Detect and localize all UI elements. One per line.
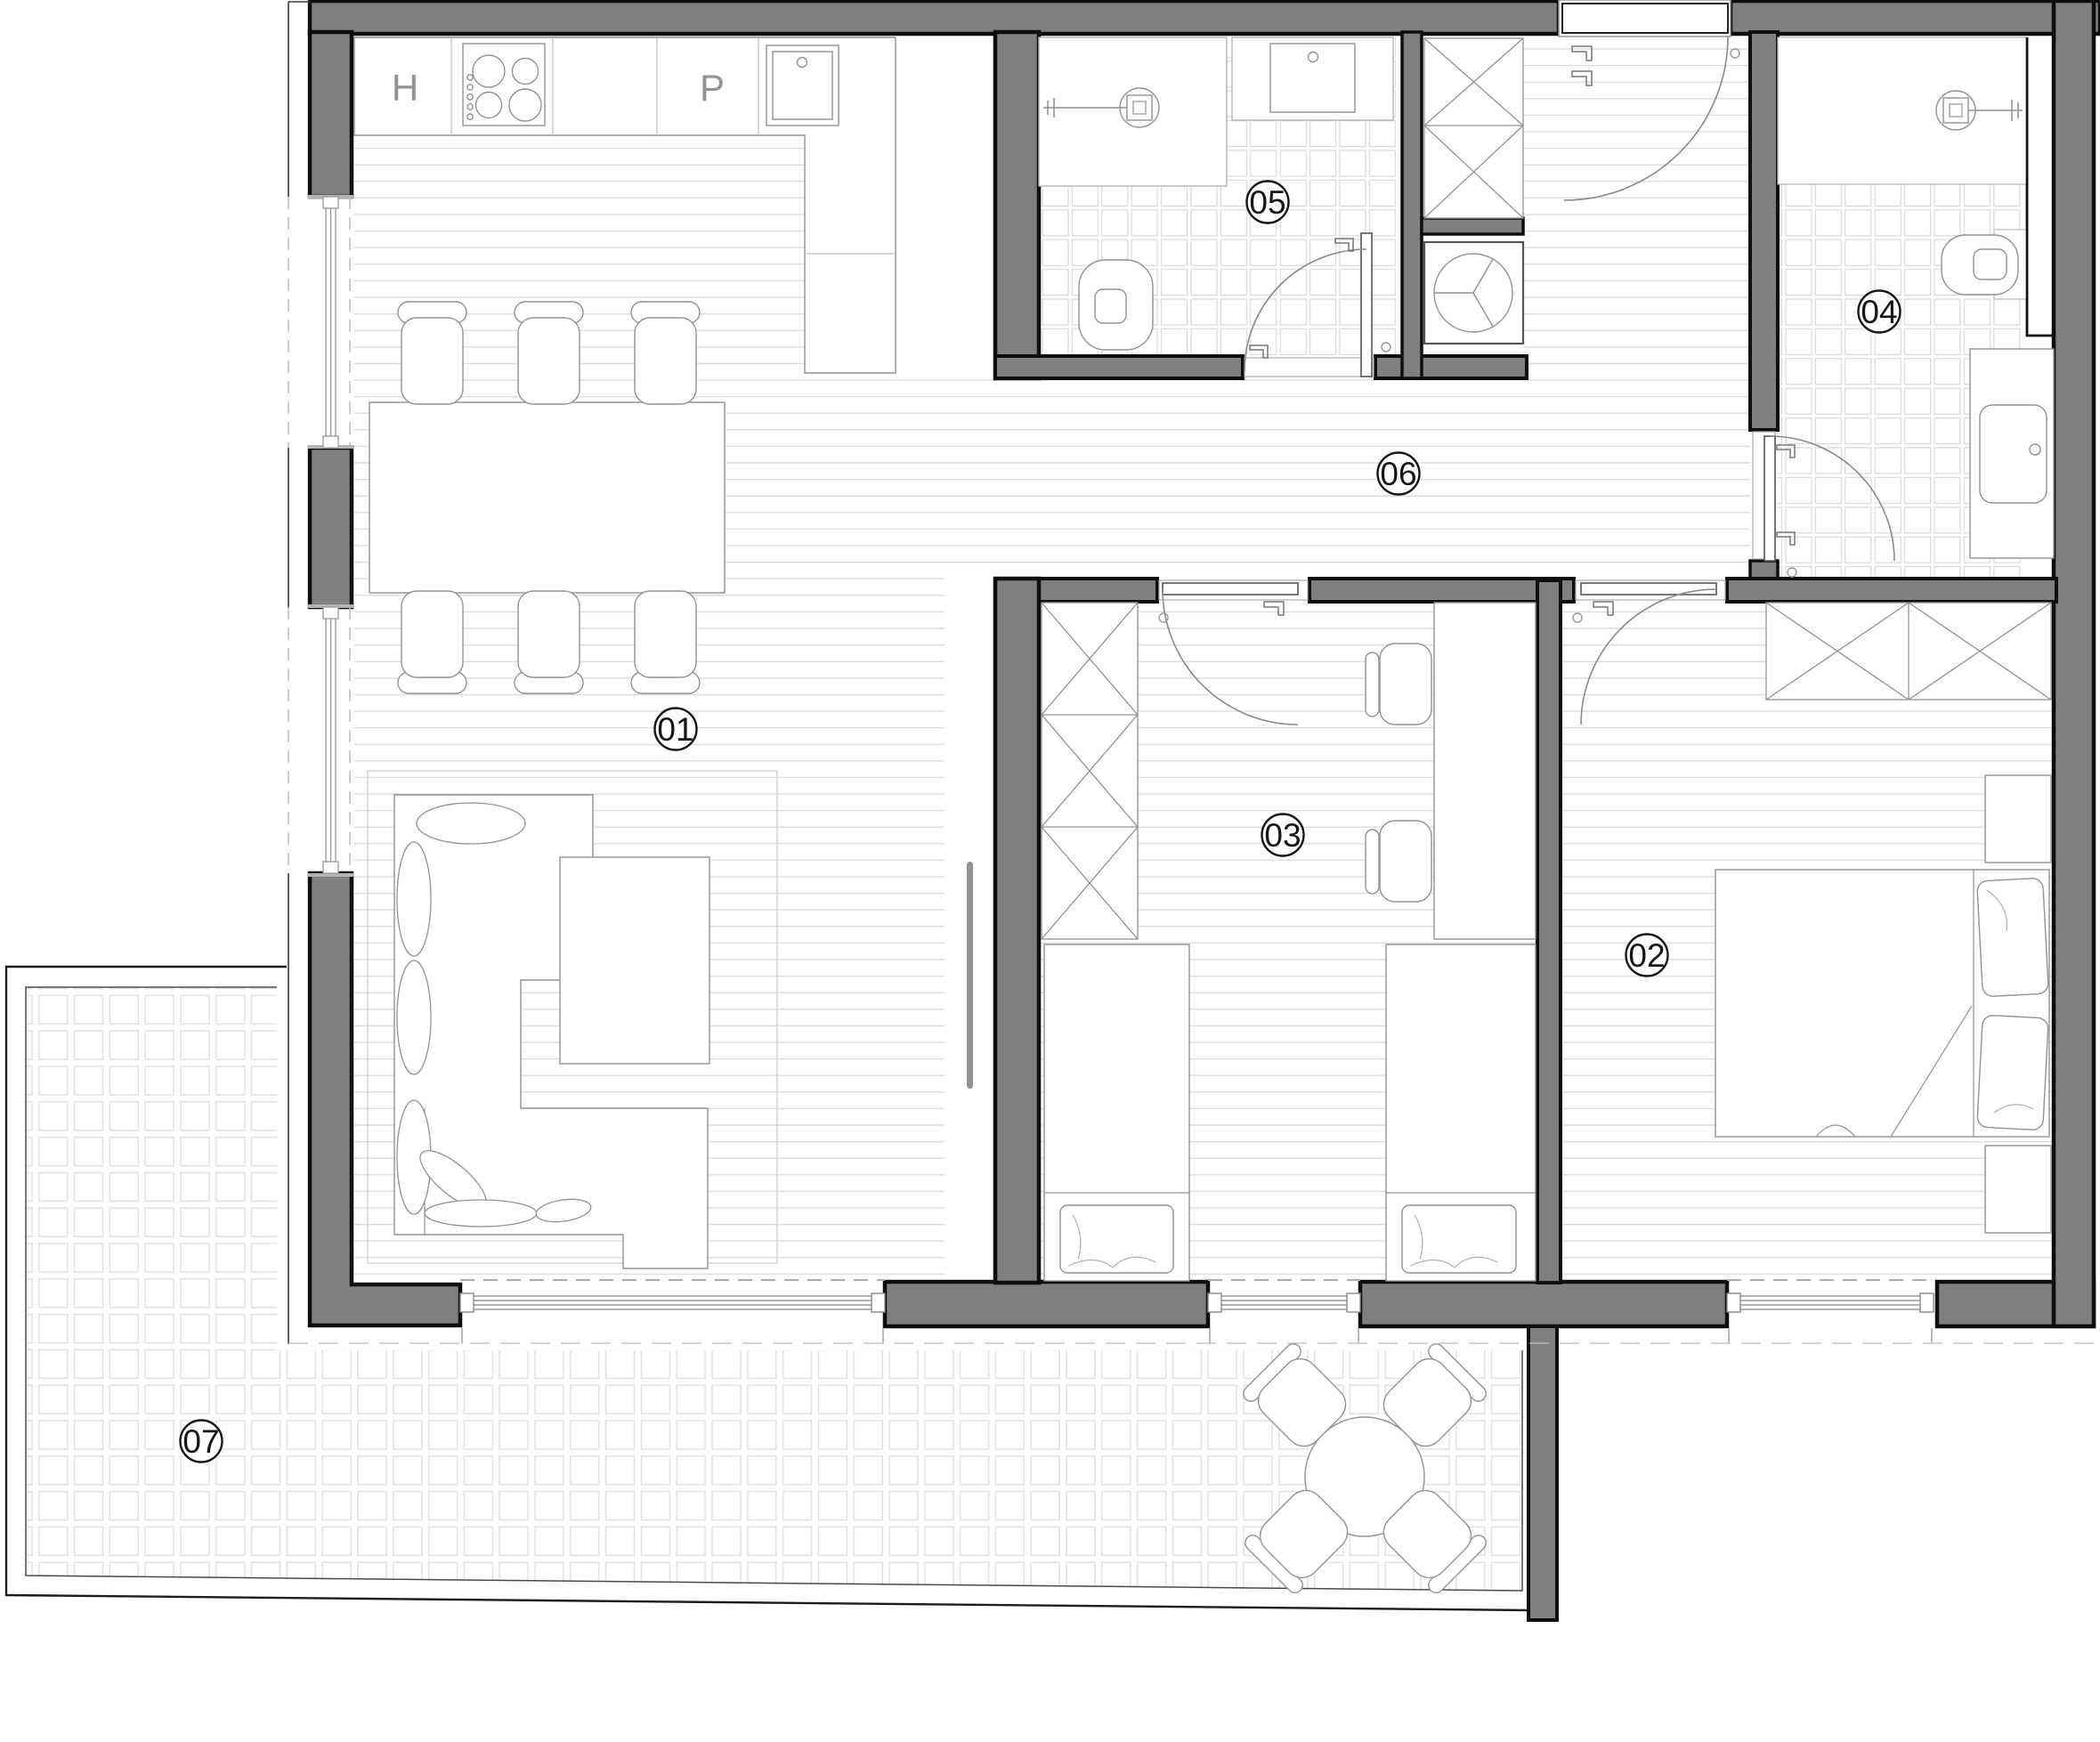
svg-text:P: P	[700, 67, 725, 109]
svg-text:06: 06	[1380, 456, 1416, 492]
svg-text:04: 04	[1861, 294, 1897, 330]
svg-text:01: 01	[657, 711, 693, 748]
svg-text:03: 03	[1264, 817, 1301, 854]
svg-text:H: H	[392, 67, 418, 109]
svg-text:07: 07	[182, 1423, 219, 1460]
svg-text:05: 05	[1249, 184, 1285, 221]
svg-text:02: 02	[1628, 937, 1665, 974]
